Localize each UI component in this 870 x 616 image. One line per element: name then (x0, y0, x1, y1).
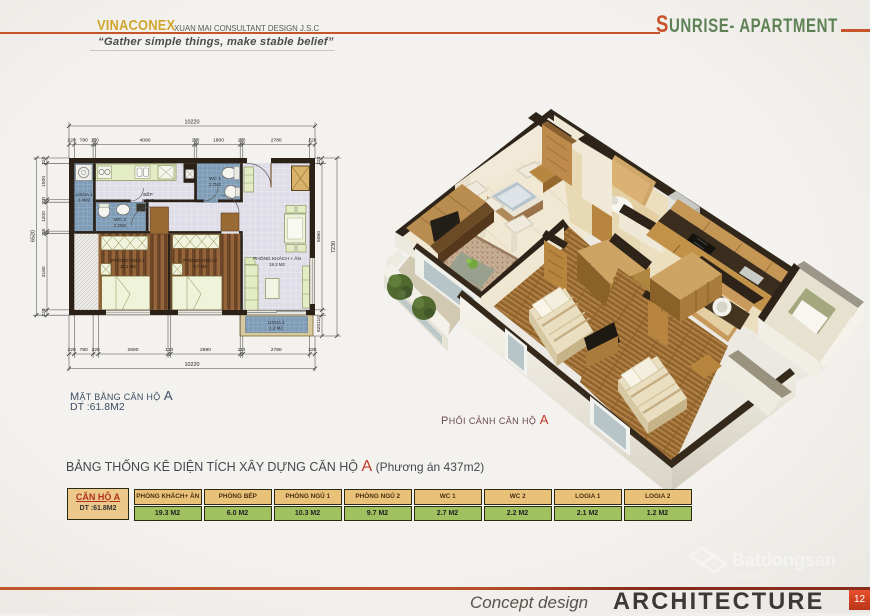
svg-text:7230: 7230 (331, 241, 337, 253)
svg-text:780: 780 (80, 138, 88, 144)
svg-text:110: 110 (238, 138, 246, 144)
svg-text:2890: 2890 (128, 347, 139, 353)
svg-text:110: 110 (192, 138, 200, 144)
svg-text:.com.vn: .com.vn (732, 570, 764, 580)
svg-text:110: 110 (41, 197, 47, 205)
svg-text:220: 220 (308, 138, 316, 144)
svg-text:220: 220 (92, 347, 100, 353)
svg-text:1800: 1800 (213, 138, 224, 144)
svg-text:BẾP: BẾP (143, 191, 153, 198)
svg-text:PHÒNG NGỦ 1: PHÒNG NGỦ 1 (111, 257, 145, 264)
svg-text:PHÒNG KHÁCH + ĂN: PHÒNG KHÁCH + ĂN (253, 255, 301, 262)
svg-text:110: 110 (165, 347, 173, 353)
svg-text:220: 220 (41, 156, 47, 164)
svg-text:2.4M2: 2.4M2 (78, 198, 91, 203)
svg-text:6.9M2: 6.9M2 (142, 198, 155, 203)
svg-text:220: 220 (316, 156, 322, 164)
svg-text:220: 220 (68, 138, 76, 144)
svg-text:2780: 2780 (271, 138, 282, 144)
svg-text:1500: 1500 (41, 176, 47, 187)
svg-text:2.7M2: 2.7M2 (209, 182, 222, 187)
svg-text:1200: 1200 (41, 211, 47, 222)
svg-text:110: 110 (91, 138, 99, 144)
svg-text:2780: 2780 (271, 347, 282, 353)
svg-text:10220: 10220 (185, 120, 200, 126)
svg-text:LOGIA 2: LOGIA 2 (268, 320, 285, 325)
svg-text:110: 110 (41, 228, 47, 236)
svg-text:110: 110 (238, 347, 246, 353)
svg-text:9.7 M2: 9.7 M2 (193, 264, 207, 269)
svg-text:10.1 M2: 10.1 M2 (120, 264, 136, 269)
svg-text:6520: 6520 (31, 230, 37, 242)
svg-text:220: 220 (68, 347, 76, 353)
svg-text:LOGIA 1: LOGIA 1 (76, 192, 93, 197)
svg-text:10220: 10220 (185, 362, 200, 368)
svg-text:6060: 6060 (316, 231, 322, 242)
svg-text:780: 780 (80, 347, 88, 353)
svg-text:2890: 2890 (200, 347, 211, 353)
svg-text:1.2 M2: 1.2 M2 (269, 326, 283, 331)
svg-text:3160: 3160 (41, 266, 47, 277)
svg-text:220: 220 (308, 347, 316, 353)
svg-text:220: 220 (41, 308, 47, 316)
svg-text:4090: 4090 (140, 138, 151, 144)
svg-text:2.2M2: 2.2M2 (114, 223, 127, 228)
svg-text:19.3 M2: 19.3 M2 (269, 262, 285, 267)
svg-text:Batdongsan: Batdongsan (732, 550, 836, 570)
svg-text:PHÒNG NGỦ 2: PHÒNG NGỦ 2 (183, 257, 217, 264)
svg-text:820110: 820110 (316, 316, 322, 332)
